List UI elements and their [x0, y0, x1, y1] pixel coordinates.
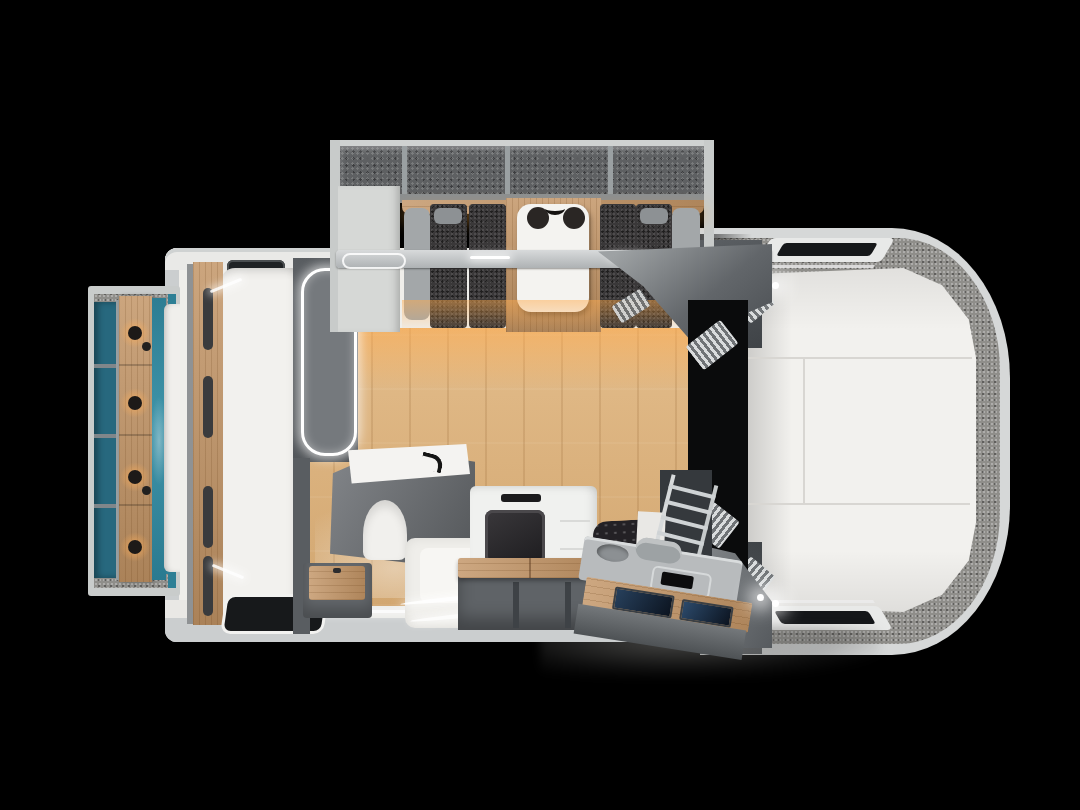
rear-bedroom-slideout	[88, 286, 180, 596]
under-bench-warm-glow	[402, 300, 704, 332]
sconce-light-2	[128, 396, 142, 410]
ladder-rung-3	[661, 515, 709, 530]
reading-light-top	[772, 282, 779, 289]
step-stool-handle	[333, 568, 341, 573]
cubby-divider-1	[94, 364, 118, 368]
oven-door	[485, 510, 545, 564]
shelf-divider-3	[608, 146, 613, 198]
headboard-seam-1	[119, 364, 152, 366]
shelf-divider-1	[402, 146, 407, 198]
table-decor	[545, 202, 565, 215]
appliance-vent-line-1	[560, 520, 590, 522]
table-bowl-right	[563, 207, 585, 229]
sconce-pendant-3	[142, 486, 151, 495]
skylight-bottom-glass	[774, 611, 876, 624]
ladder-rung-2	[664, 500, 712, 515]
floorplan-render	[0, 0, 1080, 810]
sconce-light-3	[128, 470, 142, 484]
headboard-seam-2	[119, 434, 152, 436]
bench-divider-1	[513, 582, 519, 628]
ladder-rung-1	[668, 484, 716, 499]
skylight-top-glass	[776, 243, 878, 256]
skylight-top-trim-line	[755, 265, 875, 268]
wardrobe-slot-3	[203, 486, 213, 548]
rear-bed	[221, 268, 300, 622]
band-led-glint-1	[470, 256, 510, 259]
sconce-light-1	[128, 326, 142, 340]
slideout-mattress-edge	[164, 304, 180, 572]
cubby-divider-2	[94, 434, 118, 438]
cubby-divider-3	[94, 504, 118, 508]
toilet	[363, 500, 407, 560]
mattress-seam-vertical	[803, 357, 805, 505]
wardrobe-slot-1	[203, 288, 213, 350]
dinette-slideout	[330, 140, 714, 332]
mattress-seam-bottom	[740, 503, 970, 505]
oven-top-slot	[501, 494, 541, 502]
shelf-divider-2	[505, 146, 510, 198]
left-bench-pillow	[434, 208, 462, 224]
bench-seam	[529, 558, 531, 578]
wardrobe-slot-2	[203, 376, 213, 438]
band-window-frame-left	[342, 253, 406, 269]
headboard-seam-3	[119, 504, 152, 506]
sconce-light-4	[128, 540, 142, 554]
exterior-entry-light	[757, 594, 764, 601]
mattress-seam-top	[738, 357, 972, 359]
right-bench-pillow	[640, 208, 668, 224]
cabover-mattress-shading	[734, 268, 976, 612]
storage-cubbies	[94, 302, 118, 578]
sconce-pendant-1	[142, 342, 151, 351]
reading-light-bottom	[772, 600, 779, 607]
bench-divider-2	[565, 582, 571, 628]
